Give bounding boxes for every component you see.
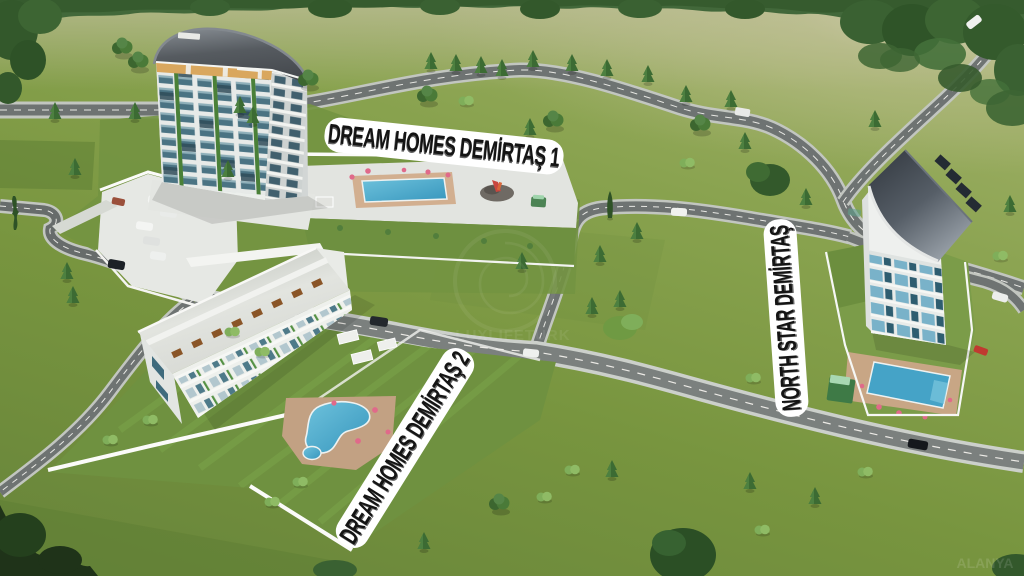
svg-text:ALANYA: ALANYA bbox=[956, 555, 1013, 571]
svg-text:LUXLIFETURK: LUXLIFETURK bbox=[455, 327, 570, 344]
